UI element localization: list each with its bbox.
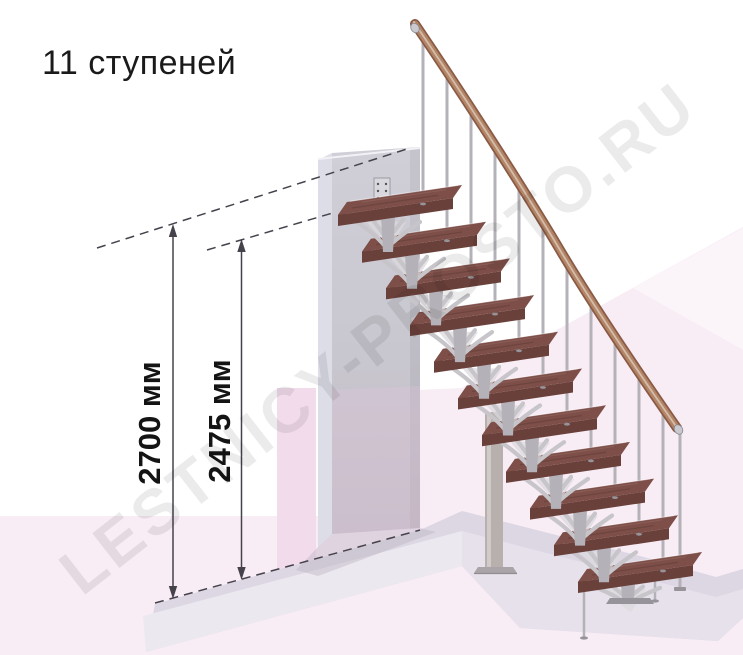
wall-shadow-strip: [277, 388, 316, 574]
baluster-foot: [636, 533, 642, 536]
baluster-foot: [588, 460, 594, 463]
wall-side-face: [318, 153, 332, 547]
baluster-foot: [612, 496, 618, 499]
bracket-post: [597, 547, 611, 582]
baluster-foot: [660, 570, 666, 573]
baluster-foot: [444, 239, 450, 242]
baluster-foot: [492, 313, 498, 316]
dashed-line-top-step-level: [207, 212, 336, 250]
bracket-post: [453, 327, 467, 362]
bracket-post: [381, 217, 395, 252]
bracket-base-plate: [606, 598, 654, 604]
baluster-foot: [420, 203, 426, 206]
baluster-foot: [516, 349, 522, 352]
wall-pink-reflection: [332, 386, 420, 534]
step-leg-foot: [580, 636, 588, 639]
baluster-foot: [564, 423, 570, 426]
bracket-post: [573, 511, 587, 546]
staircase-illustration-page: 11 ступеней 2700 мм 2475 мм LESTNICY-PRO…: [0, 0, 743, 655]
rail-end-post-foot: [674, 587, 686, 591]
bracket-post: [501, 401, 515, 436]
bracket-post: [477, 364, 491, 399]
bracket-post: [525, 437, 539, 472]
dimension-label-top-step-height: 2475 мм: [202, 336, 238, 506]
baluster-foot: [540, 386, 546, 389]
arrowhead-icon: [169, 224, 177, 237]
column-base-plate: [474, 567, 517, 573]
page-title: 11 ступеней: [42, 44, 236, 83]
baluster-foot: [468, 276, 474, 279]
bracket-post: [405, 254, 419, 289]
dimension-label-total-height: 2700 мм: [132, 338, 168, 508]
bracket-post: [549, 474, 563, 509]
staircase-diagram: [0, 0, 743, 655]
bracket-post: [429, 290, 443, 325]
